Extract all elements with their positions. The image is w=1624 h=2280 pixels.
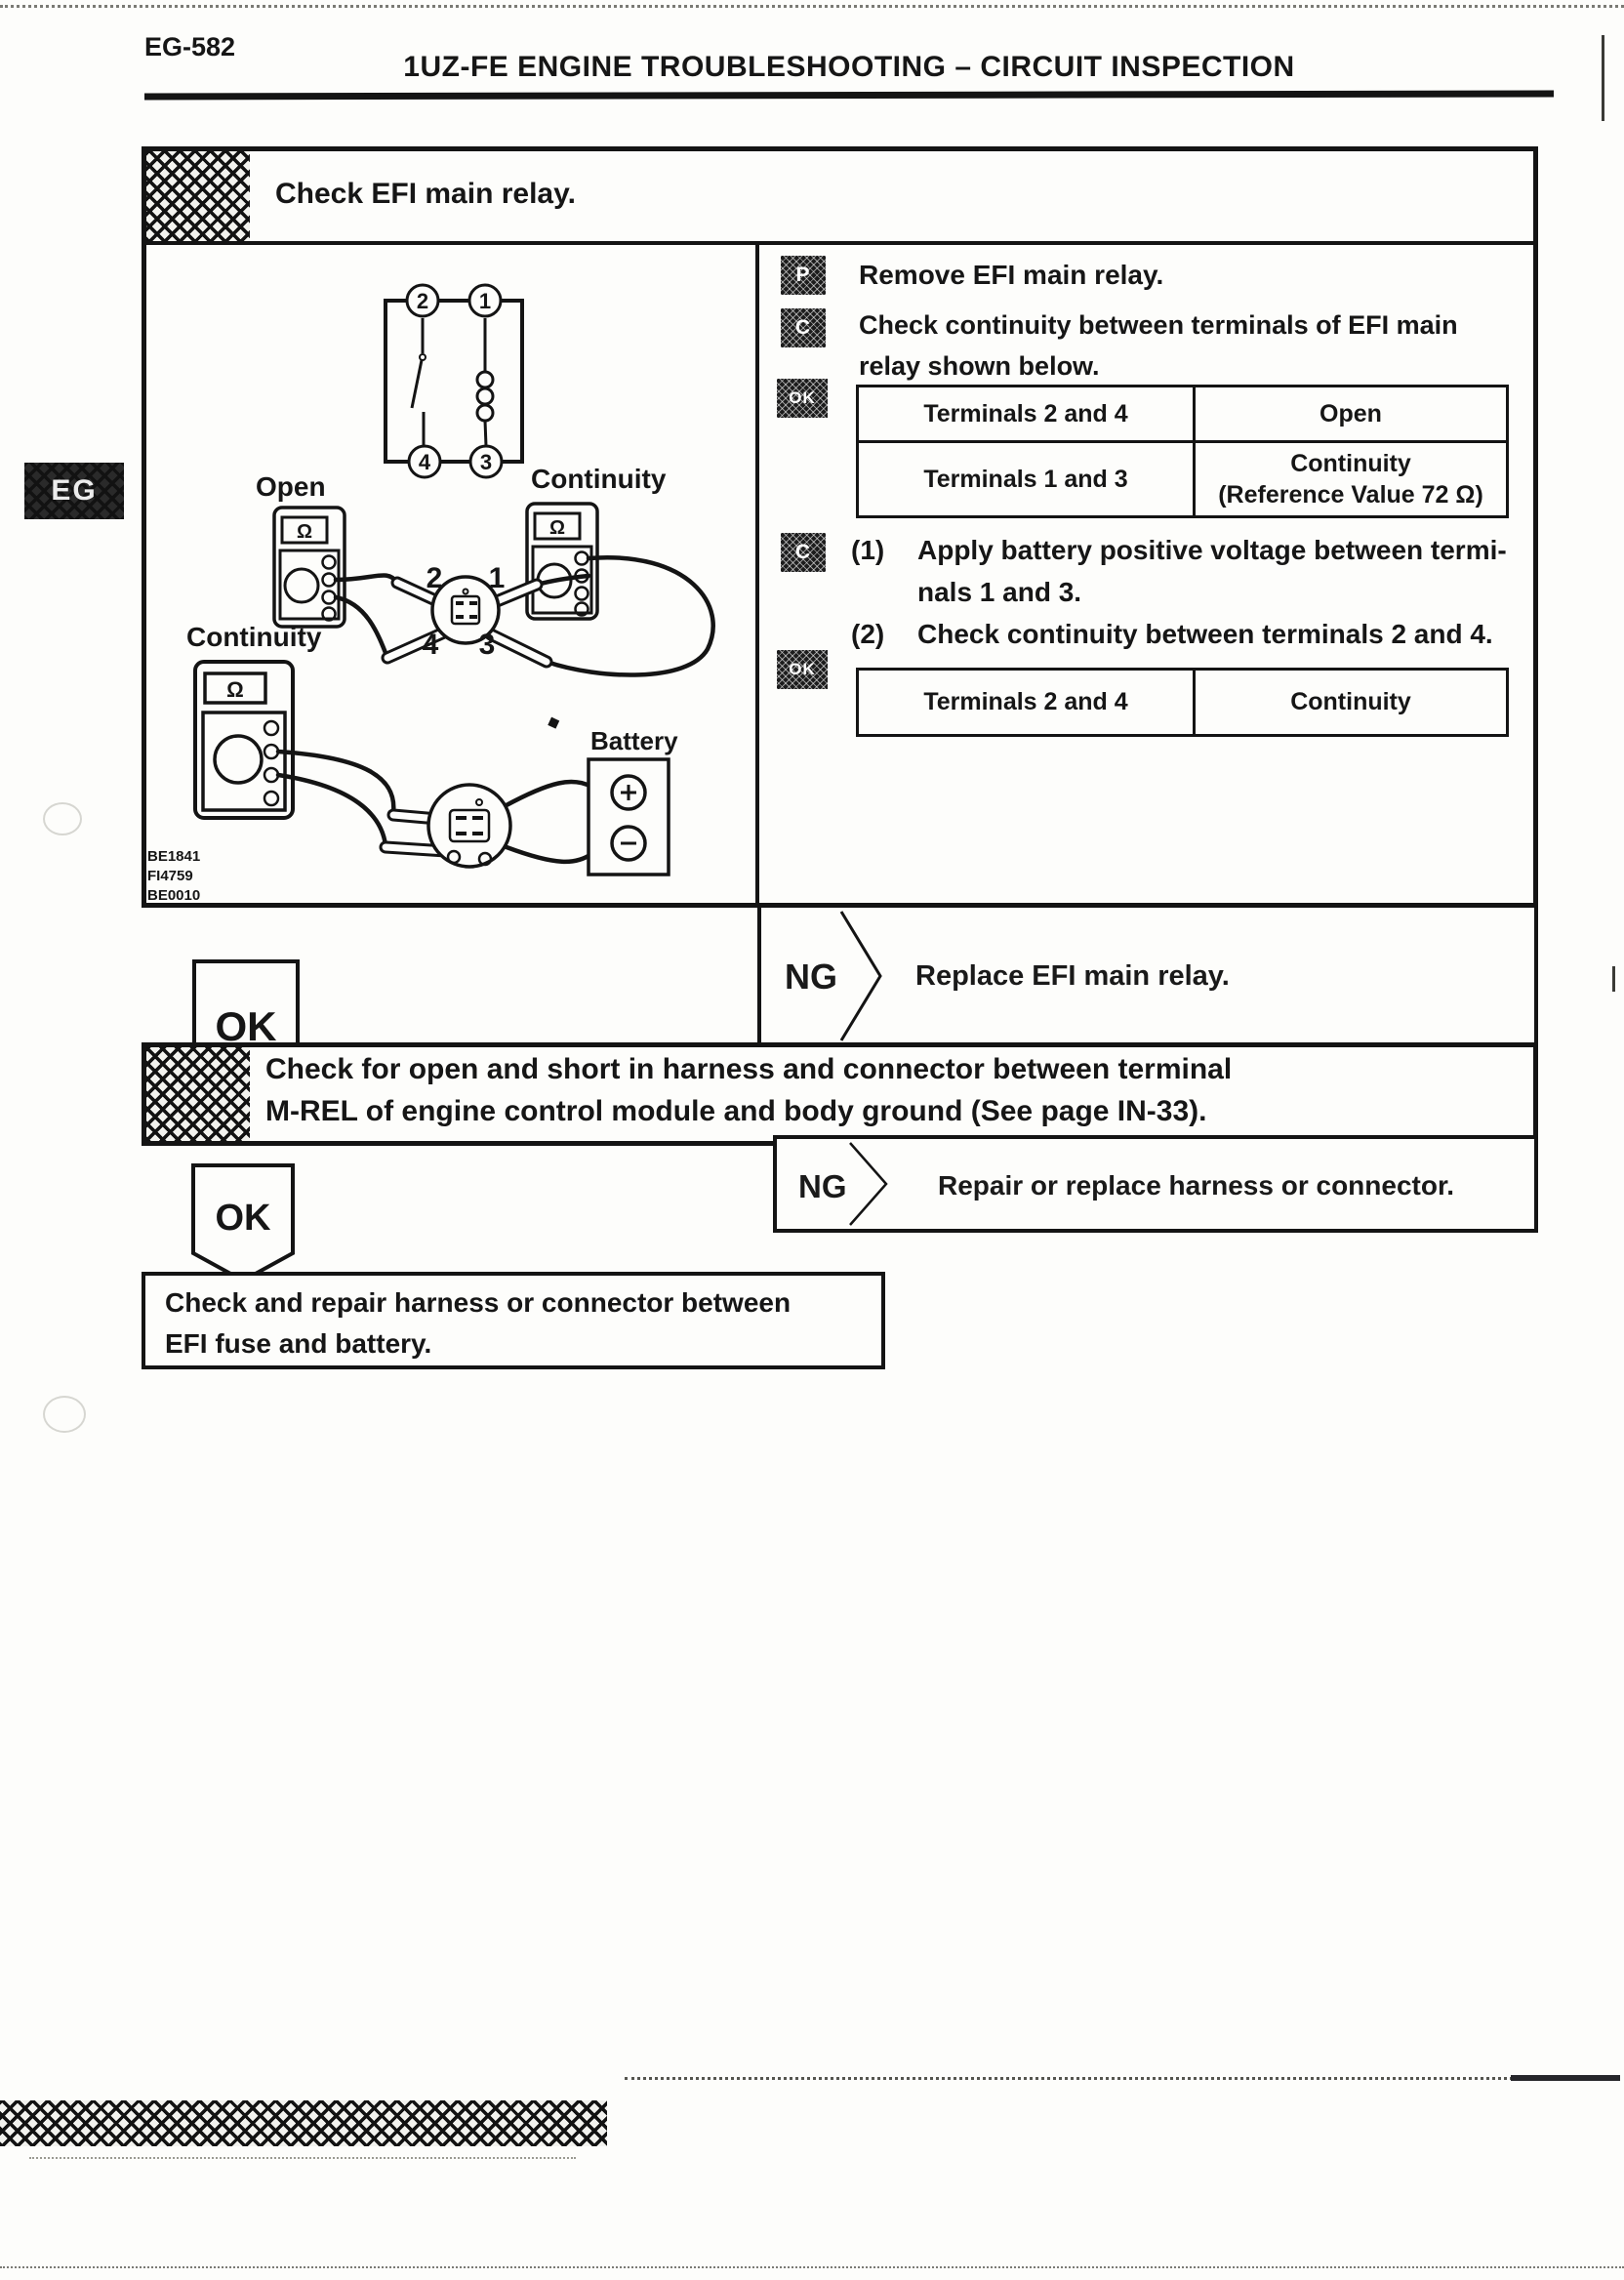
final-box-line2: EFI fuse and battery. bbox=[165, 1328, 431, 1360]
bottom-right-dash bbox=[1511, 2075, 1620, 2081]
continuity-table-2: Terminals 2 and 4 Continuity bbox=[856, 668, 1509, 737]
bottom-edge-speckle-2 bbox=[29, 2157, 576, 2159]
margin-tab-eg: EG bbox=[24, 463, 124, 519]
multimeter-open: Ω bbox=[274, 508, 345, 627]
continuity-label-top: Continuity bbox=[531, 464, 667, 494]
relay-terminal-1: 1 bbox=[489, 562, 506, 594]
schematic-terminal-3: 3 bbox=[480, 450, 492, 474]
ok-icon-1: OK bbox=[777, 379, 828, 418]
step1-ng-action: Replace EFI main relay. bbox=[915, 960, 1230, 993]
ohm-symbol-bottom-meter: Ω bbox=[226, 677, 244, 702]
mid-right-scan-tick bbox=[1612, 966, 1615, 992]
step1-c-line2: relay shown below. bbox=[859, 351, 1100, 382]
ng-chevron-2 bbox=[845, 1139, 896, 1229]
top-right-scan-line bbox=[1602, 35, 1604, 121]
table1-r2c2: Continuity (Reference Value 72 Ω) bbox=[1195, 442, 1508, 517]
ohm-symbol-right-meter: Ω bbox=[549, 517, 565, 539]
margin-tab-label: EG bbox=[51, 474, 97, 508]
step2-ng-action: Repair or replace harness or connector. bbox=[938, 1170, 1454, 1201]
multimeter-continuity-bottom: Ω bbox=[195, 662, 293, 818]
ok-icon-1-letters: OK bbox=[789, 388, 816, 408]
step2-line2: M-REL of engine control module and body … bbox=[265, 1095, 1206, 1128]
ohm-symbol-open-meter: Ω bbox=[297, 521, 312, 543]
table1-r1c1: Terminals 2 and 4 bbox=[858, 387, 1195, 442]
multimeter-continuity-top: Ω bbox=[527, 504, 597, 619]
table1-r2c2-line1: Continuity bbox=[1199, 448, 1502, 480]
schematic-terminal-1: 1 bbox=[479, 289, 491, 313]
scan-speck bbox=[548, 717, 559, 729]
step1-hatch-block bbox=[146, 151, 250, 241]
check-icon-1: C bbox=[781, 308, 826, 347]
table1-r1c2: Open bbox=[1195, 387, 1508, 442]
table1-r2c1: Terminals 1 and 3 bbox=[858, 442, 1195, 517]
step1-title: Check EFI main relay. bbox=[275, 178, 576, 211]
step2-line1: Check for open and short in harness and … bbox=[265, 1053, 1232, 1086]
step2-hatch-block bbox=[146, 1047, 250, 1141]
step1-c2-text1b: nals 1 and 3. bbox=[917, 577, 1081, 608]
relay-terminal-2: 2 bbox=[426, 562, 443, 594]
battery-symbol bbox=[589, 759, 669, 875]
continuity-table-1: Terminals 2 and 4 Open Terminals 1 and 3… bbox=[856, 385, 1509, 518]
binder-hole-artifact-lower bbox=[43, 1396, 86, 1433]
relay-bottom-view-powered bbox=[428, 785, 510, 867]
header-rule bbox=[144, 90, 1554, 100]
step1-ng-box: NG Replace EFI main relay. bbox=[757, 904, 1538, 1052]
step1-p-text: Remove EFI main relay. bbox=[859, 260, 1163, 291]
figure-code-1: BE1841 bbox=[147, 848, 200, 865]
step1-panel-divider bbox=[755, 245, 759, 903]
manual-page: EG-582 1UZ-FE ENGINE TROUBLESHOOTING – C… bbox=[0, 0, 1624, 2280]
binder-hole-artifact-upper bbox=[43, 802, 82, 835]
ok-icon-2: OK bbox=[777, 650, 828, 689]
ok-icon-2-letters: OK bbox=[789, 660, 816, 679]
bottom-hatch-band bbox=[0, 2100, 607, 2146]
bottom-edge-speckle-1 bbox=[0, 2266, 1624, 2268]
open-label: Open bbox=[256, 471, 326, 502]
step1-ng-label: NG bbox=[785, 957, 837, 997]
step2-ok-badge: OK bbox=[189, 1161, 297, 1284]
table2-c2: Continuity bbox=[1195, 670, 1508, 736]
step2-ng-label: NG bbox=[798, 1168, 847, 1205]
step1-c-line1: Check continuity between terminals of EF… bbox=[859, 310, 1458, 341]
step2-ok-badge-label: OK bbox=[216, 1198, 272, 1239]
relay-terminal-4: 4 bbox=[423, 629, 439, 661]
check-icon-2: C bbox=[781, 533, 826, 572]
battery-label: Battery bbox=[590, 726, 678, 755]
ng-chevron-1 bbox=[835, 908, 890, 1046]
table1-r2c2-line2: (Reference Value 72 Ω) bbox=[1199, 479, 1502, 511]
bottom-dotted-rule bbox=[625, 2077, 1513, 2080]
step1-c2-num2: (2) bbox=[851, 619, 884, 650]
prepare-icon: P bbox=[781, 256, 826, 295]
schematic-terminal-4: 4 bbox=[419, 450, 431, 474]
figure-code-2: FI4759 bbox=[147, 868, 193, 884]
relay-terminal-3: 3 bbox=[479, 629, 496, 661]
prepare-icon-letter: P bbox=[795, 264, 810, 287]
relay-schematic bbox=[386, 285, 522, 477]
table2-c1: Terminals 2 and 4 bbox=[858, 670, 1195, 736]
check-icon-2-letter: C bbox=[795, 541, 811, 564]
final-action-box: Check and repair harness or connector be… bbox=[142, 1272, 885, 1369]
step1-c2-text1: Apply battery positive voltage between t… bbox=[917, 535, 1507, 566]
step1-c2-text2: Check continuity between terminals 2 and… bbox=[917, 619, 1493, 650]
step2-ng-box: NG Repair or replace harness or connecto… bbox=[773, 1135, 1538, 1233]
figure-code-3: BE0010 bbox=[147, 887, 200, 904]
step1-c2-num1: (1) bbox=[851, 535, 884, 566]
relay-test-diagram: 2 1 4 3 Open Continuity Continuity Batte… bbox=[142, 244, 755, 908]
schematic-terminal-2: 2 bbox=[417, 289, 428, 313]
page-title: 1UZ-FE ENGINE TROUBLESHOOTING – CIRCUIT … bbox=[146, 51, 1552, 84]
figure-codes: BE1841 FI4759 BE0010 bbox=[147, 848, 200, 904]
final-box-line1: Check and repair harness or connector be… bbox=[165, 1287, 791, 1319]
top-edge-speckle bbox=[0, 5, 1624, 8]
check-icon-1-letter: C bbox=[795, 316, 811, 340]
